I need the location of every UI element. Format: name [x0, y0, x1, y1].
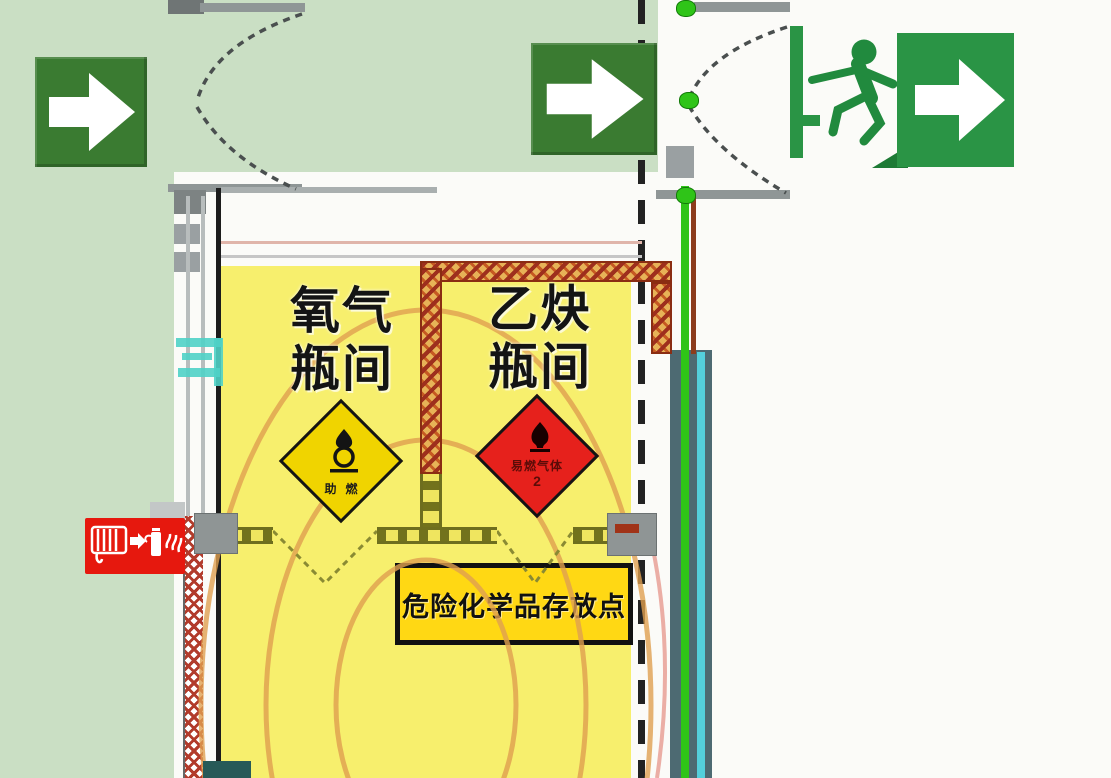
room-label-acetylene: 乙炔 瓶间 [460, 280, 620, 396]
oxidizer-label: 助燃 [300, 480, 382, 497]
bottom-wall-segment [377, 527, 497, 544]
room-label-acetylene-line2: 瓶间 [460, 338, 620, 396]
exit-arrow-sign-left [35, 57, 147, 167]
hatched-wall-top [420, 261, 672, 282]
exit-arrow-square [897, 33, 1014, 167]
flammable-gas-label: 易燃气体 [496, 457, 578, 474]
exit-arrow-icon [897, 33, 1014, 167]
flammable-gas-class: 2 [496, 473, 578, 489]
hinge-marker [676, 0, 696, 17]
room-divider-wall-lower [420, 474, 442, 532]
wall-post [607, 513, 657, 556]
flammable-gas-diamond-content: 易燃气体 2 [496, 415, 578, 497]
exit-arrow-icon [35, 57, 147, 167]
hatched-wall-right [651, 282, 672, 354]
oxidizer-diamond-content: 助燃 [300, 420, 382, 502]
floor-plan: 危险化学品存放点 [0, 0, 1111, 778]
room-label-acetylene-line1: 乙炔 [460, 280, 620, 338]
fire-equipment-sign [85, 518, 185, 574]
plumbing-fixture [182, 353, 212, 360]
plumbing-fixture [214, 338, 223, 386]
room-divider-wall [420, 268, 442, 474]
room-label-oxygen-line2: 瓶间 [262, 340, 422, 398]
fire-hose-extinguisher-icon [85, 518, 185, 574]
exit-arrow-icon [531, 43, 657, 155]
wall-post-marker [615, 524, 639, 533]
hinge-marker [676, 187, 696, 204]
wall-post [194, 513, 238, 554]
room-label-oxygen: 氧气 瓶间 [262, 282, 422, 398]
flammable-flame-icon [518, 421, 562, 453]
oxidizer-flame-icon [320, 428, 368, 474]
equipment-block [203, 761, 251, 778]
room-label-oxygen-line1: 氧气 [262, 282, 422, 340]
exit-arrow-sign-middle [531, 43, 657, 155]
hinge-marker [679, 92, 699, 109]
